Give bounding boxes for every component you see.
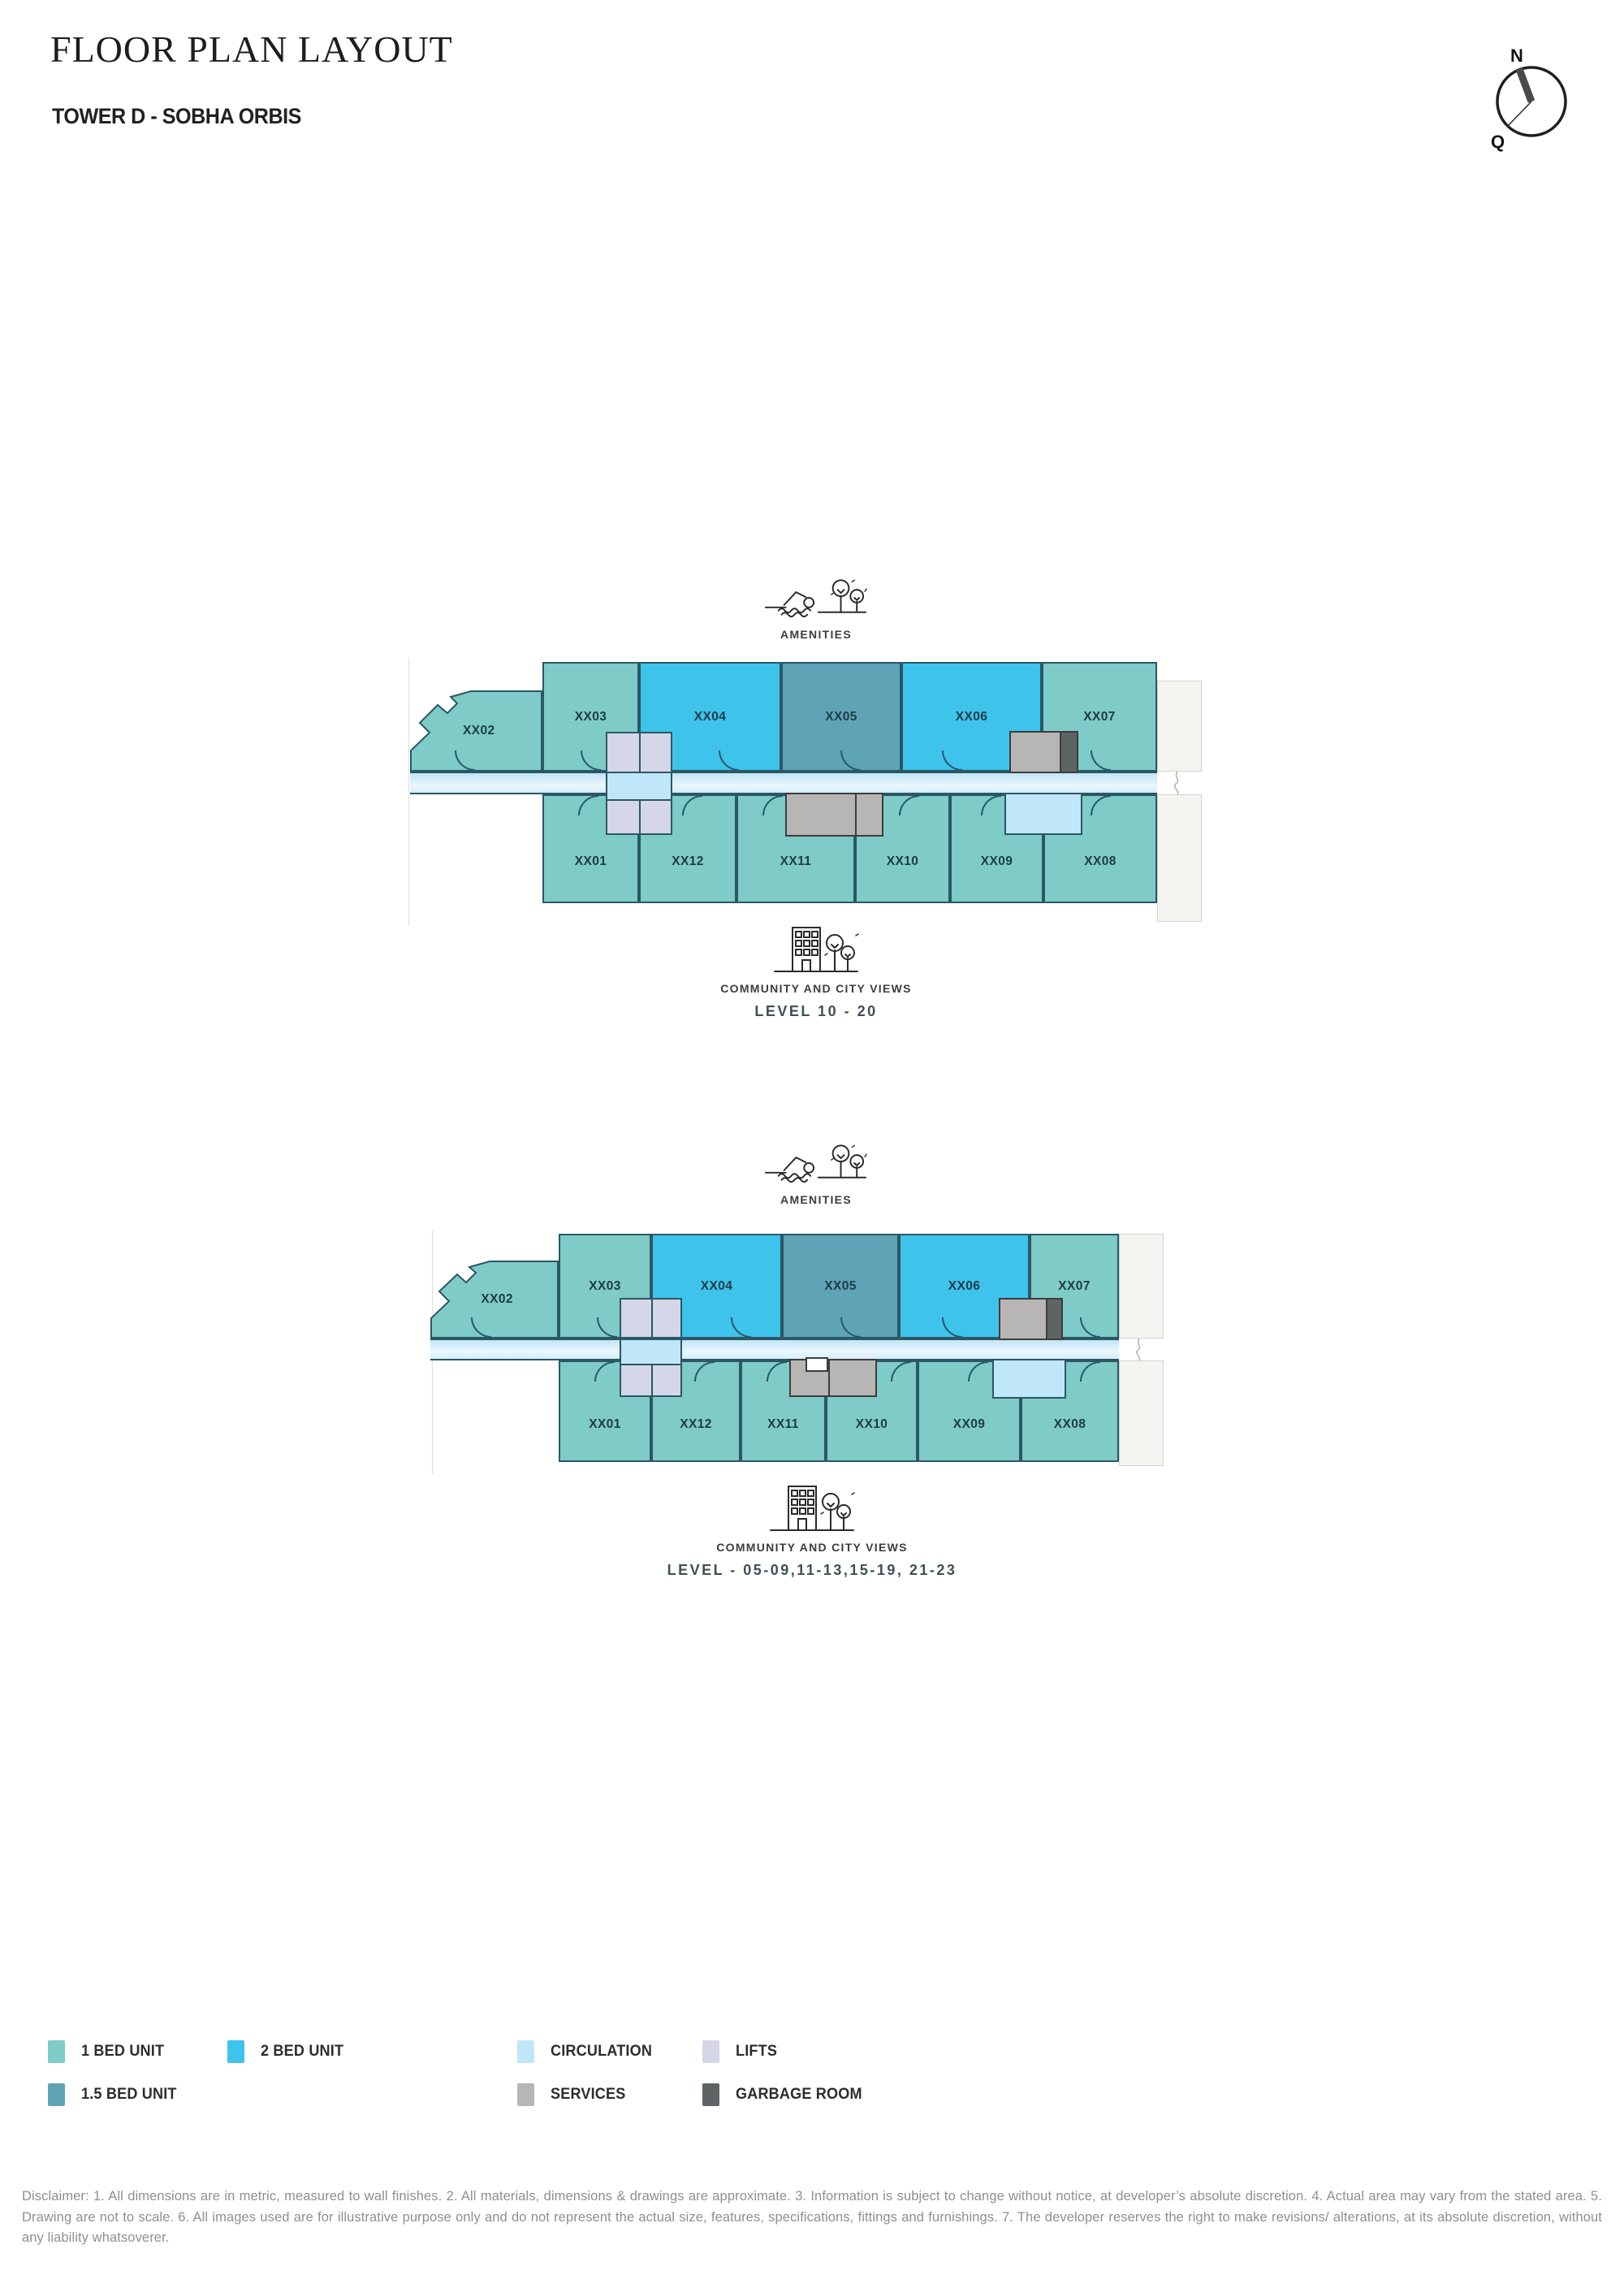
unit-label: XX05	[825, 710, 857, 724]
lift-block	[620, 1364, 653, 1397]
legend-label: GARBAGE ROOM	[736, 2086, 862, 2104]
unit-label: XX06	[956, 710, 988, 724]
services-block	[1009, 731, 1061, 773]
page-subtitle: TOWER D - SOBHA ORBIS	[52, 104, 301, 129]
legend-label: LIFTS	[736, 2043, 777, 2061]
break-line-icon	[1134, 1339, 1145, 1360]
circulation-block	[1004, 793, 1082, 835]
unit-label: XX08	[1084, 854, 1116, 869]
unit-label: XX10	[887, 854, 919, 869]
building-trees-icon	[767, 1483, 857, 1538]
legend-swatch-1-bed	[48, 2040, 65, 2063]
unit-xx02: XX02	[430, 1261, 559, 1339]
unit-label: XX02	[481, 1292, 513, 1307]
amenities-label: AMENITIES	[719, 628, 914, 641]
services-block	[999, 1298, 1047, 1340]
unit-label: XX03	[575, 710, 607, 724]
corridor	[430, 1339, 1119, 1360]
circulation-block	[992, 1359, 1066, 1399]
unit-label: XX02	[463, 724, 495, 738]
lift-lobby-block	[606, 772, 672, 801]
disclaimer-text: Disclaimer: 1. All dimensions are in met…	[22, 2186, 1602, 2249]
views-label: COMMUNITY AND CITY VIEWS	[625, 1541, 999, 1554]
amenities-caption-plan1: AMENITIES	[719, 575, 914, 641]
community-caption-plan2: COMMUNITY AND CITY VIEWS LEVEL - 05-09,1…	[625, 1483, 999, 1579]
floor-plan-page: FLOOR PLAN LAYOUT TOWER D - SOBHA ORBIS …	[0, 0, 1624, 2288]
building-trees-icon	[771, 924, 861, 979]
services-block	[855, 793, 883, 837]
legend-label: CIRCULATION	[551, 2043, 652, 2061]
legend-swatch-circulation	[517, 2040, 534, 2063]
legend-swatch-1-5-bed	[48, 2083, 65, 2106]
continuation-strip	[1157, 794, 1202, 922]
legend-swatch-services	[517, 2083, 534, 2106]
continuation-strip	[1119, 1360, 1164, 1466]
floor-plan-level-10-20: XX02 XX03 XX04 XX05 XX06 XX07 XX01 XX12 …	[410, 658, 1206, 930]
page-title: FLOOR PLAN LAYOUT	[50, 28, 453, 71]
swimmer-trees-icon	[764, 575, 868, 625]
unit-xx02: XX02	[410, 690, 542, 772]
legend-item-circulation: CIRCULATION	[517, 2040, 658, 2063]
level-label: LEVEL 10 - 20	[686, 1003, 946, 1020]
unit-label: XX04	[701, 1279, 733, 1294]
legend-label: 2 BED UNIT	[261, 2043, 343, 2061]
views-label: COMMUNITY AND CITY VIEWS	[686, 982, 946, 995]
lift-block	[639, 799, 672, 835]
unit-label: XX08	[1054, 1417, 1086, 1432]
continuation-strip	[1119, 1234, 1164, 1339]
continuation-strip	[1157, 681, 1202, 772]
unit-label: XX09	[953, 1417, 986, 1432]
legend-swatch-garbage-room	[702, 2083, 719, 2106]
unit-label: XX12	[672, 854, 704, 869]
legend-item-services: SERVICES	[517, 2083, 629, 2106]
unit-label: XX03	[589, 1279, 621, 1294]
level-label: LEVEL - 05-09,11-13,15-19, 21-23	[625, 1562, 999, 1579]
community-caption-plan1: COMMUNITY AND CITY VIEWS LEVEL 10 - 20	[686, 924, 946, 1020]
unit-label: XX01	[589, 1417, 621, 1432]
lift-block	[606, 799, 641, 835]
legend-swatch-lifts	[702, 2040, 719, 2063]
unit-label: XX05	[824, 1279, 857, 1294]
legend-item-1-bed: 1 BED UNIT	[48, 2040, 169, 2063]
services-block	[785, 793, 857, 837]
unit-label: XX12	[680, 1417, 712, 1432]
legend-item-2-bed: 2 BED UNIT	[227, 2040, 348, 2063]
legend-item-1-5-bed: 1.5 BED UNIT	[48, 2083, 182, 2106]
unit-label: XX01	[575, 854, 607, 869]
legend-swatch-2-bed	[227, 2040, 244, 2063]
legend-item-garbage-room: GARBAGE ROOM	[702, 2083, 869, 2106]
legend-label: 1.5 BED UNIT	[81, 2086, 177, 2104]
legend-label: 1 BED UNIT	[81, 2043, 164, 2061]
lift-block	[651, 1298, 682, 1339]
unit-label: XX11	[780, 854, 812, 869]
lift-block	[620, 1298, 653, 1339]
lift-lobby-block	[620, 1339, 682, 1365]
unit-label: XX07	[1083, 710, 1116, 724]
floor-plan-level-05-23: XX02 XX03 XX04 XX05 XX06 XX07 XX01 XX12 …	[430, 1231, 1226, 1503]
services-notch	[806, 1357, 828, 1372]
unit-label: XX10	[856, 1417, 888, 1432]
break-line-icon	[1172, 772, 1183, 794]
swimmer-trees-icon	[764, 1140, 868, 1190]
compass-q-label: Q	[1491, 132, 1505, 152]
unit-label: XX04	[694, 710, 727, 724]
guide-line	[408, 658, 409, 926]
unit-label: XX09	[981, 854, 1013, 869]
garbage-room-block	[1060, 731, 1078, 773]
compass: N Q	[1483, 28, 1580, 154]
lift-block	[639, 732, 672, 773]
lift-block	[651, 1364, 682, 1397]
unit-label: XX11	[767, 1417, 799, 1432]
amenities-label: AMENITIES	[719, 1193, 914, 1206]
legend-item-lifts: LIFTS	[702, 2040, 780, 2063]
unit-label: XX07	[1058, 1279, 1091, 1294]
garbage-room-block	[1046, 1298, 1063, 1340]
compass-north-label: N	[1510, 45, 1523, 66]
lift-block	[606, 732, 641, 773]
services-block	[828, 1359, 877, 1397]
compass-icon: N Q	[1483, 28, 1580, 154]
legend-label: SERVICES	[551, 2086, 625, 2104]
amenities-caption-plan2: AMENITIES	[719, 1140, 914, 1206]
corridor	[410, 772, 1157, 794]
unit-label: XX06	[948, 1279, 981, 1294]
